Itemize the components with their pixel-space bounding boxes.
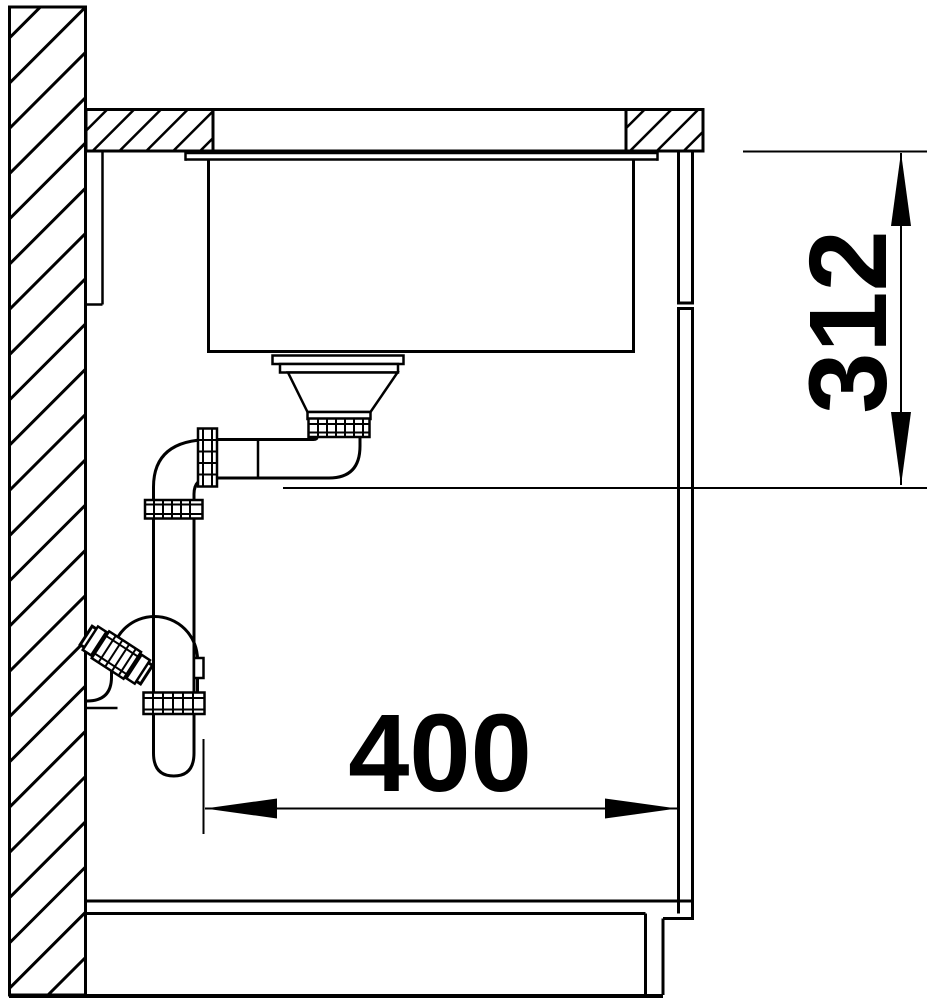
sink-bowl-walls xyxy=(209,160,634,352)
strainer-funnel xyxy=(288,373,398,413)
countertop-right-cut-section xyxy=(626,110,703,152)
elbow-coupling-nut xyxy=(198,429,217,487)
strainer-flange-plate xyxy=(273,356,404,365)
wall-outlet-assembly xyxy=(77,622,155,688)
dimension-depth-400: 400 xyxy=(204,692,678,834)
drain-elbow-inner xyxy=(215,436,317,440)
elbow-coupling-nut-body xyxy=(198,429,217,487)
technical-drawing-page: 400 312 xyxy=(0,0,945,1000)
drain-strainer xyxy=(215,356,404,479)
dim-312-arrow-top xyxy=(891,153,911,227)
strainer-seal-plate xyxy=(280,364,398,373)
trap-inlet-stub xyxy=(194,658,204,678)
cabinet xyxy=(9,152,694,997)
trap-inlet-nut xyxy=(144,693,205,715)
back-rail xyxy=(86,151,103,305)
dim-312-arrow-bottom xyxy=(891,412,911,486)
countertop-left-cut-section xyxy=(86,110,213,152)
strainer-coupling-nut xyxy=(309,419,370,438)
wall-hatched-body xyxy=(10,7,86,995)
dim-400-arrow-left xyxy=(205,799,277,819)
sink-installation-section-drawing: 400 312 xyxy=(0,0,945,1000)
countertop xyxy=(86,110,703,152)
dim-400-label: 400 xyxy=(348,692,532,815)
pipe-union-nut xyxy=(145,500,203,519)
sink-bowl xyxy=(186,152,658,352)
vertical-drain-run xyxy=(154,440,212,777)
dim-312-label: 312 xyxy=(787,230,910,414)
dimension-height-312: 312 xyxy=(283,152,927,489)
down-pipe-and-trap xyxy=(77,429,217,777)
trap-outlet-lower-curve xyxy=(87,677,112,701)
drain-elbow-outer xyxy=(215,436,360,478)
wall-section xyxy=(10,7,86,995)
dim-400-arrow-right xyxy=(605,799,677,819)
